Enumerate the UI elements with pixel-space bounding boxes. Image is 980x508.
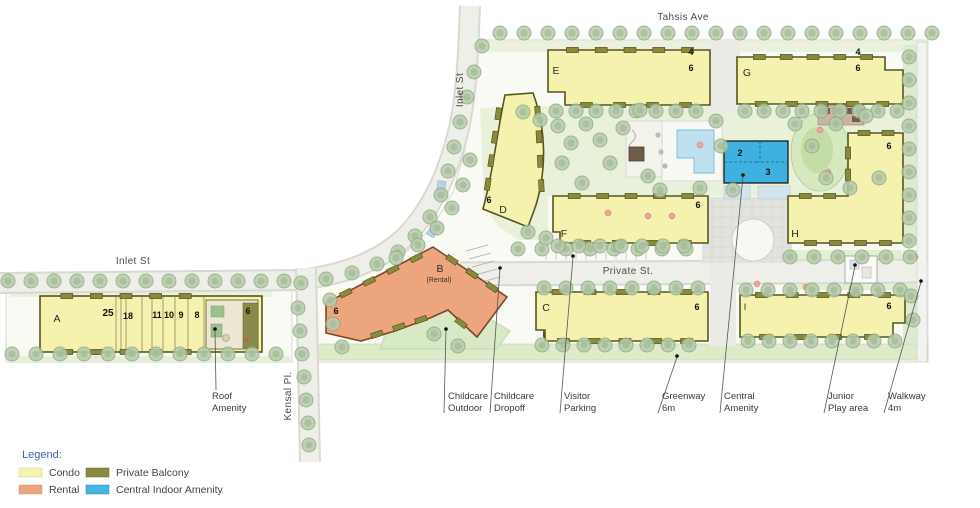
tree-icon	[208, 274, 222, 288]
tree-icon	[345, 266, 359, 280]
tree-icon	[669, 281, 683, 295]
tree-icon	[762, 334, 776, 348]
tree-icon	[788, 117, 802, 131]
roof-table	[223, 335, 230, 342]
tree-icon	[635, 239, 649, 253]
private-balcony-marker	[805, 240, 817, 245]
building-h-label: H	[791, 228, 799, 240]
tree-icon	[231, 274, 245, 288]
tree-icon	[139, 274, 153, 288]
tree-icon	[162, 274, 176, 288]
tree-icon	[319, 272, 333, 286]
tree-icon	[902, 119, 916, 133]
inlet-st-top-label: Inlet St	[455, 73, 466, 107]
private-balcony-marker	[845, 147, 850, 159]
tree-icon	[831, 250, 845, 264]
tree-icon	[541, 26, 555, 40]
tree-icon	[589, 104, 603, 118]
tree-icon	[827, 283, 841, 297]
tree-icon	[805, 26, 819, 40]
callout-childcare-dropoff-2: Dropoff	[494, 403, 525, 414]
tree-icon	[125, 347, 139, 361]
tree-icon	[323, 293, 337, 307]
kensal-pl-road-surface	[306, 268, 310, 462]
building-f-h6: 6	[695, 200, 700, 210]
tree-icon	[902, 50, 916, 64]
callout-visitor-parking-2: Parking	[564, 403, 596, 414]
tree-icon	[598, 338, 612, 352]
tahsis-ave-label: Tahsis Ave	[657, 12, 709, 23]
private-balcony-marker	[538, 180, 544, 192]
callout-walkway-2: 4m	[888, 403, 901, 414]
tree-icon	[613, 26, 627, 40]
tree-icon	[814, 104, 828, 118]
tree-icon	[853, 26, 867, 40]
private-balcony-marker	[595, 47, 607, 52]
amenity-n3: 3	[765, 167, 770, 177]
tree-icon	[551, 119, 565, 133]
building-g-h4: 4	[855, 47, 860, 57]
tree-icon	[549, 104, 563, 118]
building-b-h6: 6	[333, 306, 338, 316]
tree-icon	[795, 104, 809, 118]
tree-icon	[783, 283, 797, 297]
tree-icon	[24, 274, 38, 288]
tree-icon	[776, 104, 790, 118]
callout-central-amenity-1: Central	[724, 391, 755, 402]
tree-icon	[902, 73, 916, 87]
tree-icon	[173, 347, 187, 361]
private-balcony-marker	[861, 54, 873, 59]
tree-icon	[647, 281, 661, 295]
tree-icon	[70, 274, 84, 288]
tree-icon	[447, 140, 461, 154]
site-plan-svg: Tahsis Ave Inlet St Inlet St Kensal Pl. …	[0, 0, 980, 508]
tree-icon	[829, 26, 843, 40]
callout-junior-play-2: Play area	[828, 403, 869, 414]
private-balcony-marker	[682, 193, 694, 198]
building-i	[740, 295, 905, 337]
tree-icon	[451, 339, 465, 353]
building-e	[548, 50, 710, 105]
building-c-label: C	[542, 302, 550, 314]
tree-icon	[871, 283, 885, 297]
building-c	[536, 292, 708, 341]
legend-label-private-balcony: Private Balcony	[116, 467, 190, 479]
callout-childcare-outdoor-2: Outdoor	[448, 403, 482, 414]
tree-icon	[833, 104, 847, 118]
tree-icon	[677, 239, 691, 253]
tree-icon	[625, 281, 639, 295]
tree-icon	[641, 169, 655, 183]
callout-central-amenity-2: Amenity	[724, 403, 759, 414]
tree-icon	[434, 188, 448, 202]
tree-icon	[902, 96, 916, 110]
building-a-h25: 25	[102, 308, 114, 319]
building-f	[553, 196, 708, 243]
tree-icon	[903, 250, 917, 264]
building-e-h6: 6	[688, 63, 693, 73]
building-g-label: G	[743, 67, 751, 79]
private-balcony-marker	[824, 193, 836, 198]
private-balcony-marker	[179, 293, 191, 298]
callout-roof-1: Roof	[212, 391, 232, 402]
tree-icon	[269, 347, 283, 361]
tree-icon	[77, 347, 91, 361]
tree-icon	[637, 26, 651, 40]
building-a-h18: 18	[123, 311, 133, 321]
site-plan-page: Tahsis Ave Inlet St Inlet St Kensal Pl. …	[0, 0, 980, 508]
tree-icon	[593, 239, 607, 253]
tree-icon	[453, 115, 467, 129]
building-d-h6: 6	[486, 195, 491, 205]
tree-icon	[302, 438, 316, 452]
private-balcony-marker	[882, 130, 894, 135]
tree-icon	[221, 347, 235, 361]
tree-icon	[149, 347, 163, 361]
tree-icon	[185, 274, 199, 288]
tree-icon	[389, 251, 403, 265]
tree-icon	[47, 274, 61, 288]
legend-label-central-indoor-amenity: Central Indoor Amenity	[116, 484, 224, 496]
tree-icon	[726, 183, 740, 197]
tree-icon	[872, 171, 886, 185]
kensal-pl-label: Kensal Pl.	[283, 371, 294, 420]
private-balcony-marker	[830, 240, 842, 245]
building-a-h10: 10	[164, 310, 174, 320]
building-a-h11: 11	[152, 310, 162, 320]
tree-icon	[475, 39, 489, 53]
building-e-h4: 4	[688, 47, 693, 57]
tree-icon	[682, 338, 696, 352]
tree-icon	[299, 393, 313, 407]
patio-table	[662, 163, 667, 168]
tree-icon	[902, 211, 916, 225]
amenity-n2: 2	[737, 148, 742, 158]
tree-icon	[555, 156, 569, 170]
tree-icon	[539, 231, 553, 245]
tree-icon	[445, 201, 459, 215]
tree-icon	[902, 142, 916, 156]
tree-icon	[441, 164, 455, 178]
tree-icon	[609, 104, 623, 118]
tree-icon	[640, 338, 654, 352]
callout-visitor-parking-1: Visitor	[564, 391, 590, 402]
building-g	[737, 57, 903, 104]
callout-greenway-2: 6m	[662, 403, 675, 414]
patio-table	[655, 132, 660, 137]
gazebo	[629, 147, 644, 161]
tree-icon	[616, 121, 630, 135]
legend-swatch-rental	[19, 485, 42, 494]
tree-icon	[877, 26, 891, 40]
patio-table	[658, 149, 663, 154]
tree-icon	[689, 104, 703, 118]
tree-icon	[294, 276, 308, 290]
tree-icon	[197, 347, 211, 361]
private-balcony-marker	[536, 131, 542, 143]
legend-label-condo: Condo	[49, 467, 80, 479]
inlet-st-road-surface	[0, 6, 470, 283]
tree-icon	[297, 370, 311, 384]
tree-icon	[511, 242, 525, 256]
private-balcony-marker	[817, 292, 829, 297]
tree-icon	[649, 104, 663, 118]
tree-icon	[619, 338, 633, 352]
private-balcony-marker	[880, 240, 892, 245]
tree-icon	[825, 334, 839, 348]
building-i-label: I	[744, 302, 747, 312]
private-st-label: Private St.	[603, 266, 654, 277]
private-balcony-marker	[653, 47, 665, 52]
private-balcony-marker	[120, 293, 132, 298]
tree-icon	[326, 317, 340, 331]
tree-icon	[551, 239, 565, 253]
tree-icon	[653, 183, 667, 197]
tree-icon	[805, 283, 819, 297]
tree-icon	[757, 104, 771, 118]
tree-icon	[925, 26, 939, 40]
tree-icon	[579, 117, 593, 131]
tree-icon	[577, 338, 591, 352]
private-balcony-marker	[807, 54, 819, 59]
tree-icon	[521, 225, 535, 239]
building-b-label: B	[436, 263, 443, 275]
roof-planter	[211, 306, 224, 317]
tree-icon	[738, 104, 752, 118]
private-balcony-marker	[753, 54, 765, 59]
roof-planter	[211, 324, 222, 337]
east-walkway	[917, 42, 927, 362]
tree-icon	[335, 340, 349, 354]
tree-icon	[888, 334, 902, 348]
tree-icon	[890, 104, 904, 118]
private-balcony-marker	[858, 130, 870, 135]
callout-greenway-1: Greenway	[662, 391, 706, 402]
tree-icon	[656, 239, 670, 253]
callout-childcare-outdoor-1: Childcare	[448, 391, 488, 402]
building-c-h6: 6	[694, 302, 699, 312]
tree-icon	[293, 324, 307, 338]
private-balcony-marker	[61, 293, 73, 298]
tree-icon	[101, 347, 115, 361]
tree-icon	[116, 274, 130, 288]
tree-icon	[603, 156, 617, 170]
building-a-h9: 9	[178, 310, 183, 320]
tree-icon	[533, 113, 547, 127]
private-balcony-marker	[625, 193, 637, 198]
building-h-h6: 6	[886, 141, 891, 151]
tree-icon	[456, 178, 470, 192]
tree-icon	[783, 334, 797, 348]
tree-icon	[902, 234, 916, 248]
tree-icon	[581, 281, 595, 295]
tree-icon	[741, 334, 755, 348]
private-balcony-marker	[624, 47, 636, 52]
legend: Legend: Condo Rental Private Balcony Cen…	[19, 449, 224, 496]
tree-icon	[829, 117, 843, 131]
tree-icon	[902, 165, 916, 179]
tree-icon	[757, 26, 771, 40]
tree-icon	[714, 139, 728, 153]
tree-icon	[245, 347, 259, 361]
tree-icon	[783, 250, 797, 264]
roof-shrub	[245, 338, 249, 342]
play-equipment	[862, 267, 871, 278]
private-balcony-marker	[834, 54, 846, 59]
tree-icon	[564, 136, 578, 150]
tree-icon	[537, 281, 551, 295]
callout-childcare-dropoff-1: Childcare	[494, 391, 534, 402]
tree-icon	[589, 26, 603, 40]
callout-junior-play-1: Junior	[828, 391, 854, 402]
amenity-paving-right	[758, 186, 790, 199]
tree-icon	[593, 133, 607, 147]
private-balcony-marker	[845, 169, 850, 181]
tree-icon	[427, 327, 441, 341]
tree-icon	[661, 26, 675, 40]
building-f-label: F	[561, 228, 567, 240]
tree-icon	[29, 347, 43, 361]
tree-icon	[781, 26, 795, 40]
tree-icon	[411, 238, 425, 252]
private-balcony-marker	[566, 47, 578, 52]
tree-icon	[804, 334, 818, 348]
tree-icon	[93, 274, 107, 288]
legend-swatch-condo	[19, 468, 42, 477]
building-g-h6: 6	[855, 63, 860, 73]
tree-icon	[53, 347, 67, 361]
tree-icon	[739, 283, 753, 297]
tree-icon	[846, 334, 860, 348]
tree-icon	[902, 188, 916, 202]
tree-icon	[516, 105, 530, 119]
building-a-h6: 6	[245, 306, 250, 316]
tree-icon	[859, 109, 873, 123]
tree-icon	[709, 114, 723, 128]
private-balcony-marker	[780, 54, 792, 59]
legend-label-rental: Rental	[49, 484, 79, 496]
building-a-h8: 8	[194, 310, 199, 320]
inlet-st-left-label: Inlet St	[116, 256, 150, 267]
mews-eg	[710, 40, 740, 112]
tree-icon	[855, 250, 869, 264]
tree-icon	[572, 239, 586, 253]
tree-icon	[691, 281, 705, 295]
tree-icon	[5, 347, 19, 361]
tree-icon	[301, 416, 315, 430]
tree-icon	[709, 26, 723, 40]
building-e-label: E	[552, 65, 559, 77]
building-b-sub: (Rental)	[427, 277, 452, 284]
tree-icon	[467, 65, 481, 79]
tree-icon	[669, 104, 683, 118]
tree-icon	[295, 347, 309, 361]
tree-icon	[819, 171, 833, 185]
callout-walkway-1: Walkway	[888, 391, 926, 402]
tree-icon	[565, 26, 579, 40]
building-a-label: A	[53, 313, 60, 325]
tree-icon	[517, 26, 531, 40]
tree-icon	[575, 176, 589, 190]
tree-icon	[901, 26, 915, 40]
callout-roof-2: Amenity	[212, 403, 247, 414]
legend-swatch-central-indoor-amenity	[86, 485, 109, 494]
tree-icon	[277, 274, 291, 288]
private-balcony-marker	[855, 240, 867, 245]
private-balcony-marker	[799, 193, 811, 198]
tree-icon	[661, 338, 675, 352]
building-d-label: D	[499, 204, 507, 216]
legend-swatch-private-balcony	[86, 468, 109, 477]
tree-icon	[254, 274, 268, 288]
tree-icon	[569, 104, 583, 118]
tree-icon	[685, 26, 699, 40]
tree-icon	[370, 257, 384, 271]
tree-icon	[805, 139, 819, 153]
tree-icon	[693, 181, 707, 195]
tree-icon	[761, 283, 775, 297]
private-balcony-marker	[150, 293, 162, 298]
tree-icon	[906, 313, 920, 327]
private-balcony-marker	[597, 193, 609, 198]
tree-icon	[633, 103, 647, 117]
tree-icon	[603, 281, 617, 295]
tree-icon	[463, 153, 477, 167]
legend-title: Legend:	[22, 449, 62, 461]
private-balcony-marker	[568, 193, 580, 198]
tree-icon	[556, 338, 570, 352]
tree-icon	[843, 181, 857, 195]
mews-ci	[710, 262, 736, 346]
tree-icon	[535, 338, 549, 352]
tree-icon	[430, 221, 444, 235]
private-balcony-marker	[537, 155, 543, 167]
building-i-h6: 6	[886, 301, 891, 311]
tree-icon	[291, 301, 305, 315]
private-balcony-marker	[90, 293, 102, 298]
tree-icon	[807, 250, 821, 264]
tree-icon	[493, 26, 507, 40]
tree-icon	[614, 239, 628, 253]
tree-icon	[1, 274, 15, 288]
tree-icon	[879, 250, 893, 264]
tree-icon	[867, 334, 881, 348]
tree-icon	[733, 26, 747, 40]
